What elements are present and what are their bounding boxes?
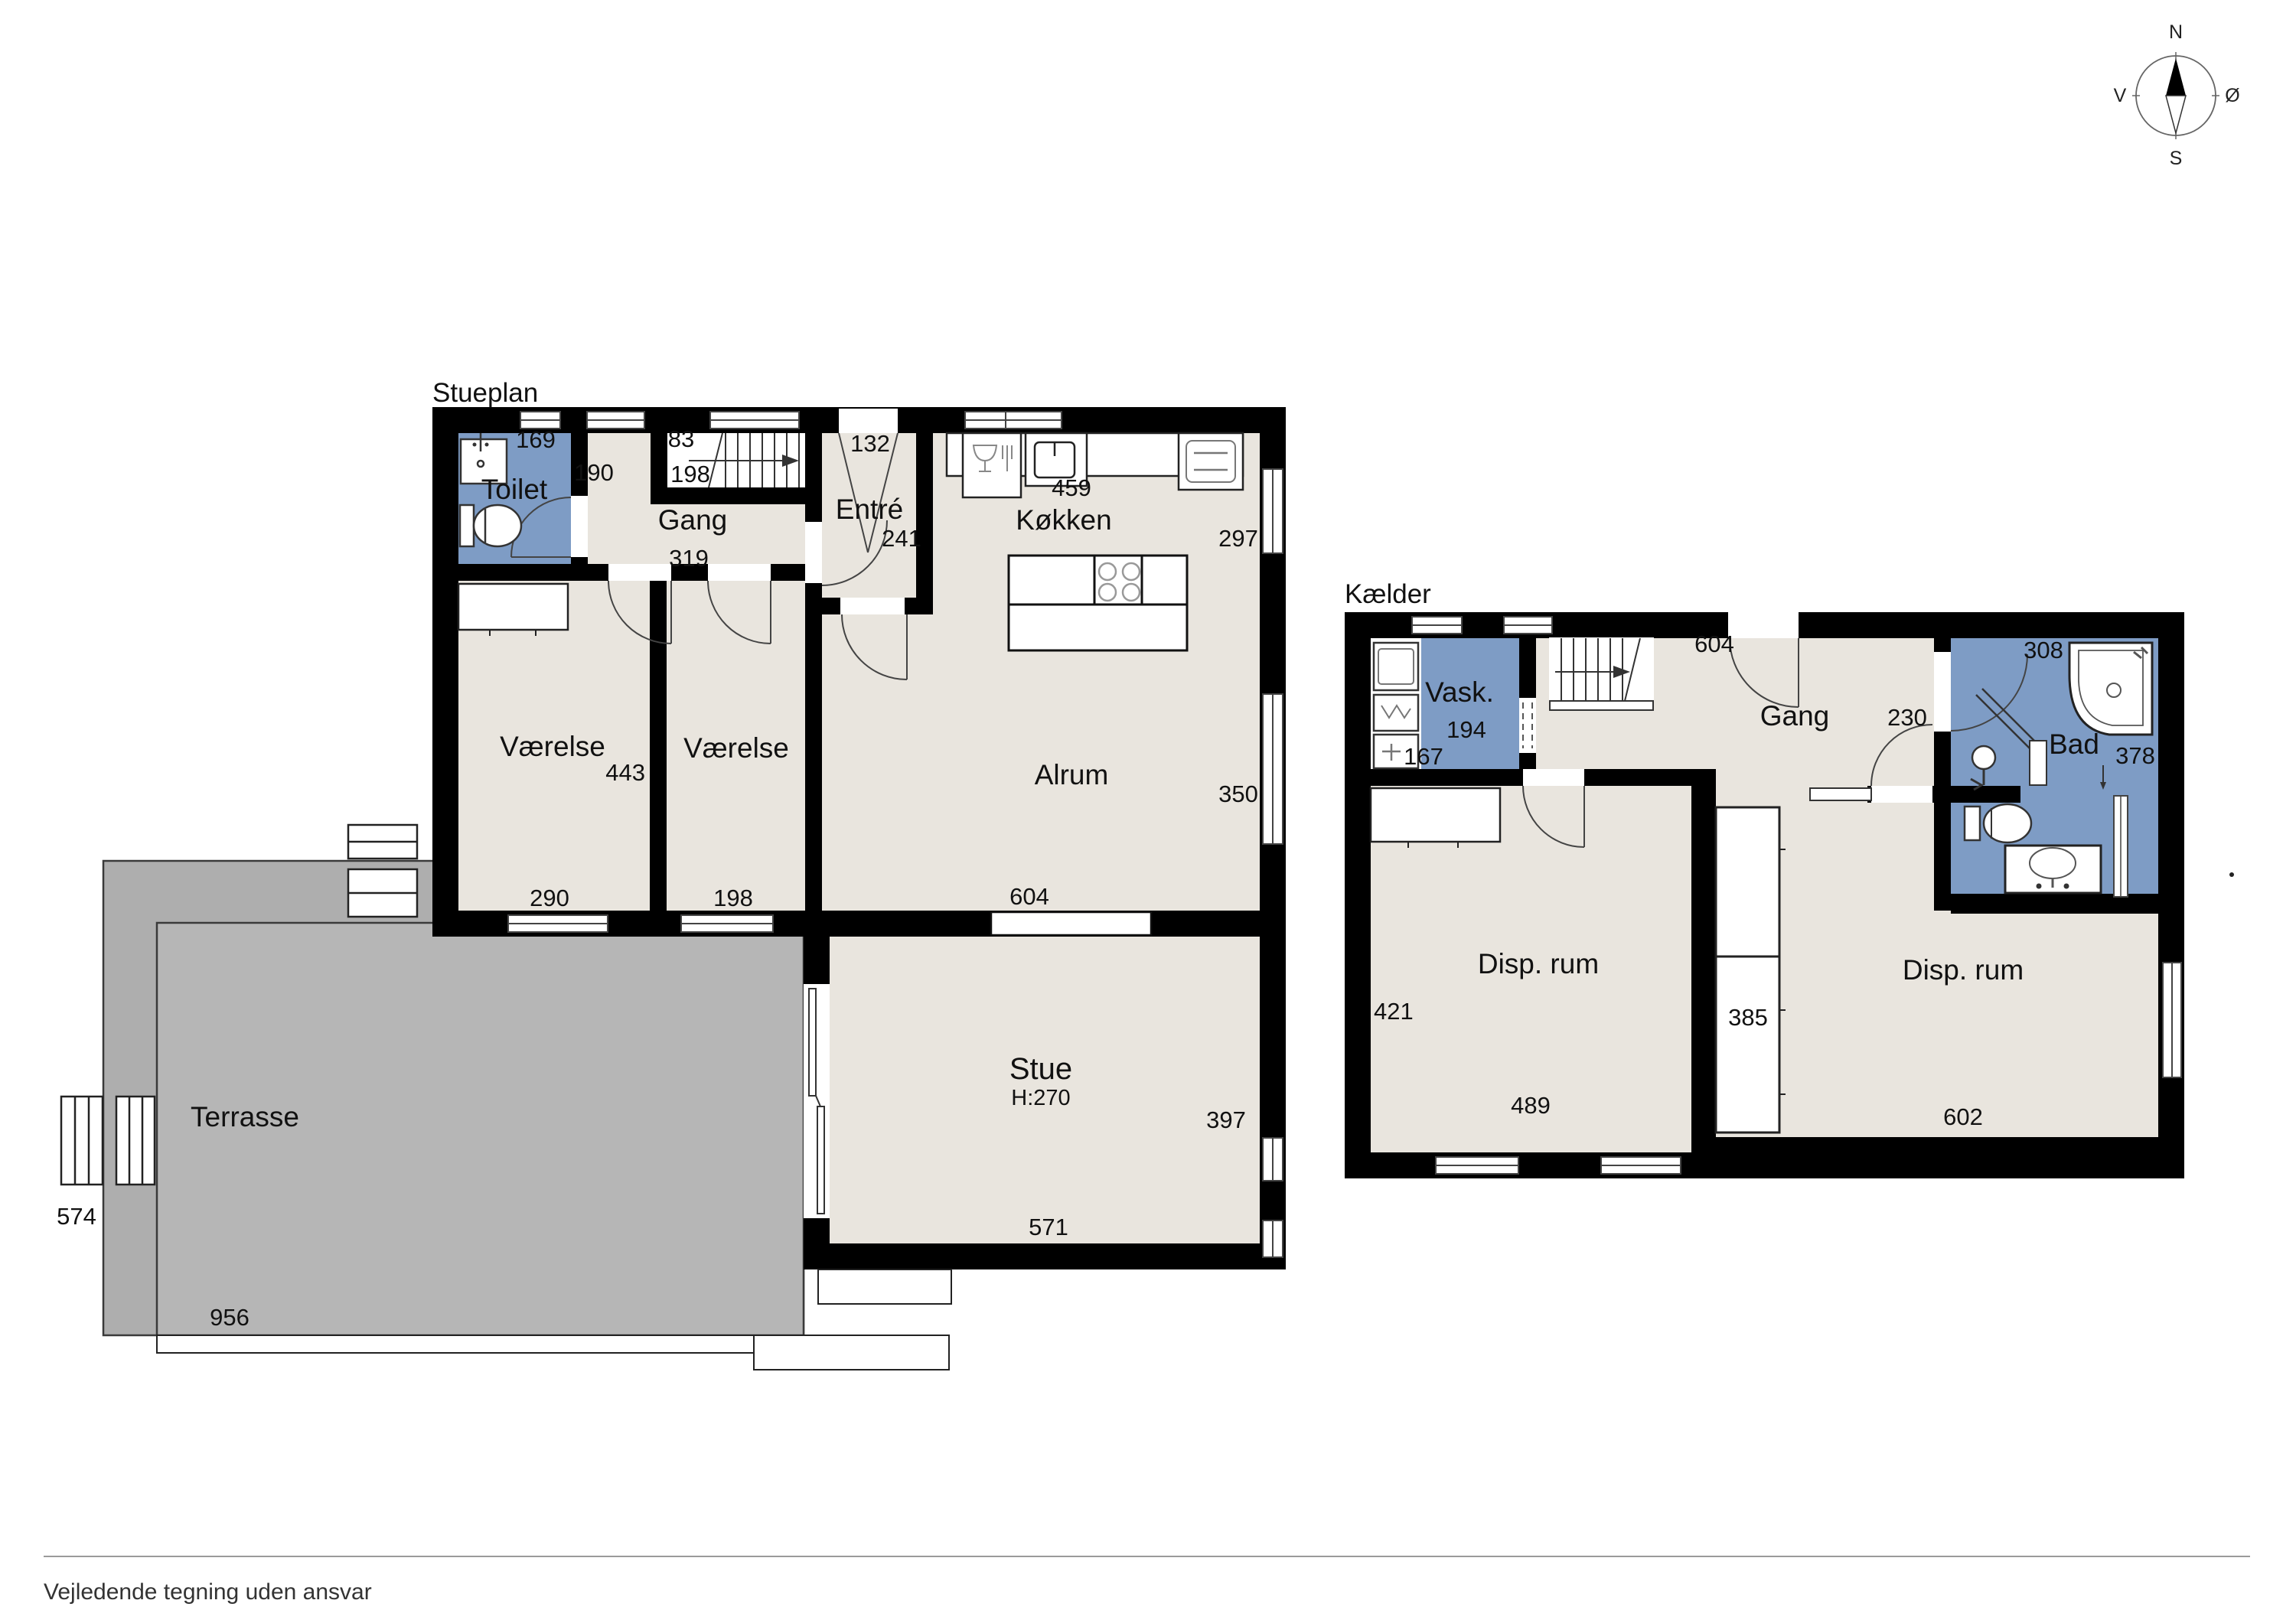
bad-door-opening — [1934, 652, 1951, 732]
gang-entre-door-opening — [805, 522, 822, 583]
dim-bad-width: 308 — [2024, 637, 2063, 663]
plan-geometry — [485, 443, 489, 447]
vaerelse-divider-wall — [650, 581, 667, 911]
dim-stue-depth: 397 — [1206, 1106, 1246, 1133]
dim-terrasse-depth: 574 — [57, 1203, 96, 1230]
disp1-door-opening — [1523, 769, 1584, 786]
compass-south-label: S — [2170, 148, 2183, 169]
compass-east-label: Ø — [2225, 85, 2239, 106]
room-label-basement-gang: Gang — [1760, 700, 1830, 732]
dim-alrum-width: 350 — [1218, 781, 1258, 807]
dim-stair-width: 83 — [668, 425, 694, 452]
toilet-tank-icon — [1965, 807, 1980, 840]
basement-title: Kælder — [1345, 579, 1431, 609]
stue-sliding-doors — [804, 984, 830, 1218]
dim-toilet-width: 169 — [516, 426, 556, 453]
compass-north-label: N — [2169, 21, 2183, 43]
dim-terrasse-width: 956 — [210, 1304, 249, 1331]
dishwasher-icon — [963, 433, 1021, 497]
dim-disp1-width: 489 — [1511, 1092, 1551, 1119]
bad-stub-wall — [1951, 786, 2020, 803]
dim-toilet-depth: 190 — [574, 459, 614, 486]
room-label-stue: Stue — [1009, 1052, 1072, 1086]
dim-vaerelse1-depth: 443 — [605, 759, 645, 786]
stue-wall-bottom — [804, 1243, 1286, 1269]
dim-vask-depth: 194 — [1446, 716, 1486, 743]
plan-geometry — [1009, 556, 1187, 605]
dim-gang-width: 319 — [669, 545, 709, 572]
dim-entre-depth: 241 — [882, 525, 921, 552]
stue-step — [818, 1269, 951, 1304]
compass-needle-south — [2166, 96, 2186, 133]
room-label-entre: Entré — [836, 494, 903, 525]
room-label-disp1: Disp. rum — [1478, 948, 1599, 979]
dim-kitchen-width: 297 — [1218, 525, 1258, 552]
plan-geometry — [1716, 807, 1779, 1133]
plan-geometry — [2037, 884, 2042, 889]
compass-rose: N S V Ø — [2114, 21, 2240, 169]
floor-plan-page: Stueplan Toilet 169 190 Gang 319 83 198 … — [0, 0, 2296, 1623]
toilet-door-opening — [571, 496, 588, 557]
basement-stairs — [1550, 638, 1653, 710]
room-label-bad: Bad — [2049, 728, 2099, 760]
ground-floor-title: Stueplan — [432, 378, 538, 408]
entre-alrum-door-opening — [840, 598, 905, 614]
room-label-disp2: Disp. rum — [1903, 954, 2024, 986]
dim-alrum-opening: 604 — [1009, 883, 1049, 910]
closet — [1371, 788, 1500, 842]
stair-wall-bottom — [651, 487, 822, 504]
disp-divider-wall — [1691, 769, 1716, 1178]
footer: Vejledende tegning uden ansvar — [44, 1556, 2250, 1605]
stue-wall-right — [1260, 911, 1286, 1269]
disp2-door-opening — [1871, 786, 1932, 803]
disclaimer-text: Vejledende tegning uden ansvar — [44, 1579, 372, 1605]
compass-west-label: V — [2114, 85, 2127, 106]
room-label-toilet: Toilet — [481, 474, 548, 505]
dim-basement-gang-width: 604 — [1694, 631, 1734, 657]
wall-left — [432, 407, 458, 937]
dim-basement-gang-depth: 230 — [1887, 704, 1927, 731]
plan-geometry — [478, 461, 484, 467]
basement-plan: Kælder Vask. 194 167 604 Gang 230 308 Ba… — [1345, 579, 2234, 1178]
dim-kitchen-counter: 459 — [1052, 474, 1091, 501]
room-label-terrasse: Terrasse — [191, 1101, 299, 1133]
plan-geometry — [2064, 884, 2069, 889]
sliding-door-leaf — [809, 989, 816, 1096]
plan-geometry — [1009, 605, 1187, 650]
floor-plan-drawing: Stueplan Toilet 169 190 Gang 319 83 198 … — [0, 0, 2296, 1623]
stue-ceiling-height: H:270 — [1011, 1086, 1070, 1110]
shower-head-icon — [1972, 746, 1995, 769]
disp2-door-leaf — [1810, 788, 1871, 800]
basement-entry-opening — [1728, 612, 1799, 638]
dim-shelf-depth: 385 — [1728, 1004, 1768, 1031]
room-label-vask: Vask. — [1425, 676, 1494, 708]
wall-bottom-right-thick — [1716, 1137, 2158, 1155]
plan-geometry — [473, 443, 477, 447]
dim-vask-width: 167 — [1404, 743, 1443, 770]
plan-geometry — [116, 1097, 155, 1185]
washing-machine-icon — [1374, 643, 1418, 690]
vask-opening — [1519, 698, 1536, 753]
spine-wall — [805, 433, 822, 911]
dim-bad-depth: 378 — [2115, 742, 2155, 769]
wardrobe — [458, 584, 568, 630]
shelf-unit — [1716, 807, 1786, 1133]
wall-right — [2158, 612, 2184, 1178]
room-label-vaerelse2: Værelse — [683, 732, 789, 764]
room-label-gang: Gang — [658, 504, 728, 536]
toilet-tank-icon — [460, 505, 474, 546]
shower-partition-post — [2030, 741, 2047, 785]
kitchen-island — [1009, 556, 1187, 650]
gang-wall-bottom-left — [1345, 769, 1691, 786]
wall-left — [1345, 612, 1371, 1178]
vaerelse2-door-opening — [708, 564, 771, 581]
alrum-stue-opening — [991, 912, 1151, 935]
room-label-kokken: Køkken — [1016, 504, 1111, 536]
plan-geometry — [61, 1097, 103, 1185]
laundry-basket-icon — [1374, 695, 1418, 731]
sliding-door-leaf — [817, 1106, 824, 1214]
toilet-bowl-icon — [474, 505, 521, 546]
stray-dot — [2229, 872, 2234, 877]
dim-stue-width: 571 — [1029, 1214, 1068, 1240]
plan-geometry — [1550, 701, 1653, 710]
dim-disp1-depth: 421 — [1374, 998, 1414, 1025]
dim-disp2-width: 602 — [1943, 1103, 1983, 1130]
room-label-vaerelse1: Værelse — [500, 731, 605, 762]
compass-needle-north — [2166, 58, 2186, 96]
dim-vaerelse2-width: 198 — [713, 885, 753, 911]
entre-kitchen-wall — [916, 433, 933, 614]
terrace-steps-top — [348, 825, 417, 917]
dim-vaerelse1-width: 290 — [530, 885, 569, 911]
vaerelse1-door-opening — [608, 564, 671, 581]
dim-stair-depth: 198 — [670, 461, 710, 487]
dim-entrance-width: 132 — [850, 430, 890, 457]
room-label-alrum: Alrum — [1035, 759, 1109, 790]
terrace-bottom-edge — [157, 1335, 754, 1353]
terrace-step-bottom — [754, 1335, 949, 1370]
